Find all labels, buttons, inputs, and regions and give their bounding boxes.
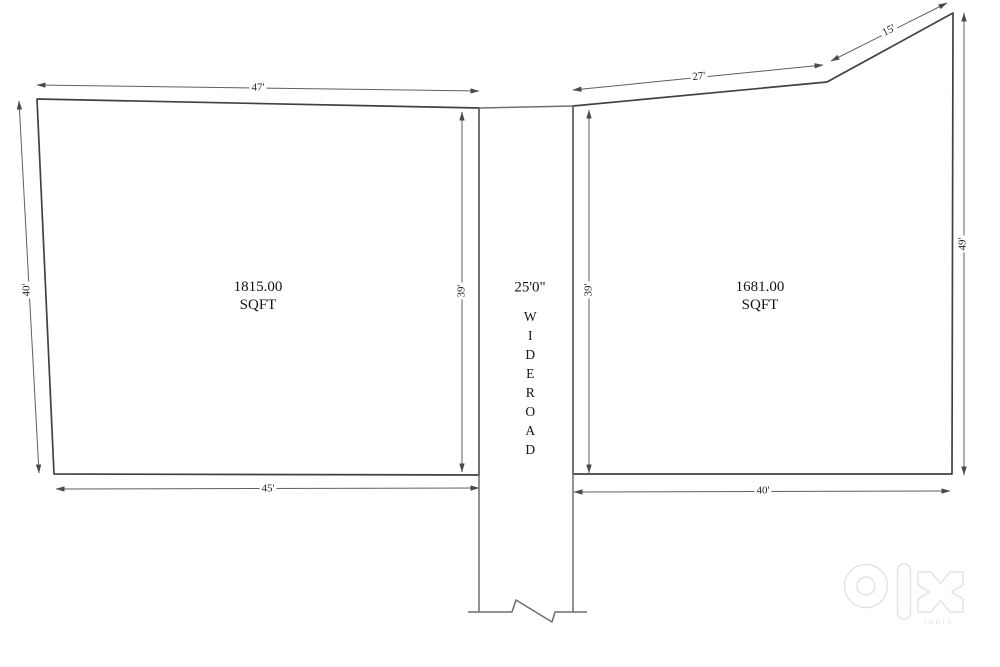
- olx-x-icon: [918, 572, 963, 612]
- right-plot-area-value: 1681.00: [736, 278, 785, 296]
- plot-boundaries: [37, 13, 953, 475]
- dim-label-right-plot-left: 39': [584, 282, 595, 299]
- road-top-edge: [479, 106, 573, 108]
- site-plan-canvas: 47' 40' 39' 45' 27' 15' 39' 49' 40' 1815…: [0, 0, 1000, 667]
- dim-label-right-plot-right: 49': [958, 236, 969, 253]
- dim-label-left-plot-bottom: 45': [260, 484, 277, 495]
- right-plot-area-label: 1681.00 SQFT: [736, 278, 785, 314]
- olx-l-icon: [898, 564, 911, 619]
- road-name-word1: WIDE: [523, 309, 537, 385]
- dim-label-left-plot-left: 40': [22, 282, 33, 299]
- dim-label-left-plot-right: 39': [457, 283, 468, 300]
- dim-label-right-plot-top-left: 27': [690, 71, 708, 84]
- left-plot-area-value: 1815.00: [234, 278, 283, 296]
- road-width-label: 25'0": [514, 280, 545, 297]
- dimension-lines: [19, 3, 964, 492]
- olx-watermark: INDIA: [838, 556, 988, 630]
- right-plot-outline: [573, 13, 953, 474]
- olx-region-label: INDIA: [924, 619, 954, 626]
- left-plot-area-label: 1815.00 SQFT: [234, 278, 283, 314]
- road-name-word2: ROAD: [523, 385, 537, 461]
- dim-label-left-plot-top: 47': [250, 83, 267, 94]
- right-plot-area-unit: SQFT: [736, 296, 785, 314]
- road-break-icon: [468, 600, 587, 622]
- olx-o-inner-icon: [857, 577, 875, 595]
- dim-label-right-plot-bottom: 40': [755, 486, 772, 497]
- olx-logo: [845, 564, 964, 619]
- left-plot-area-unit: SQFT: [234, 296, 283, 314]
